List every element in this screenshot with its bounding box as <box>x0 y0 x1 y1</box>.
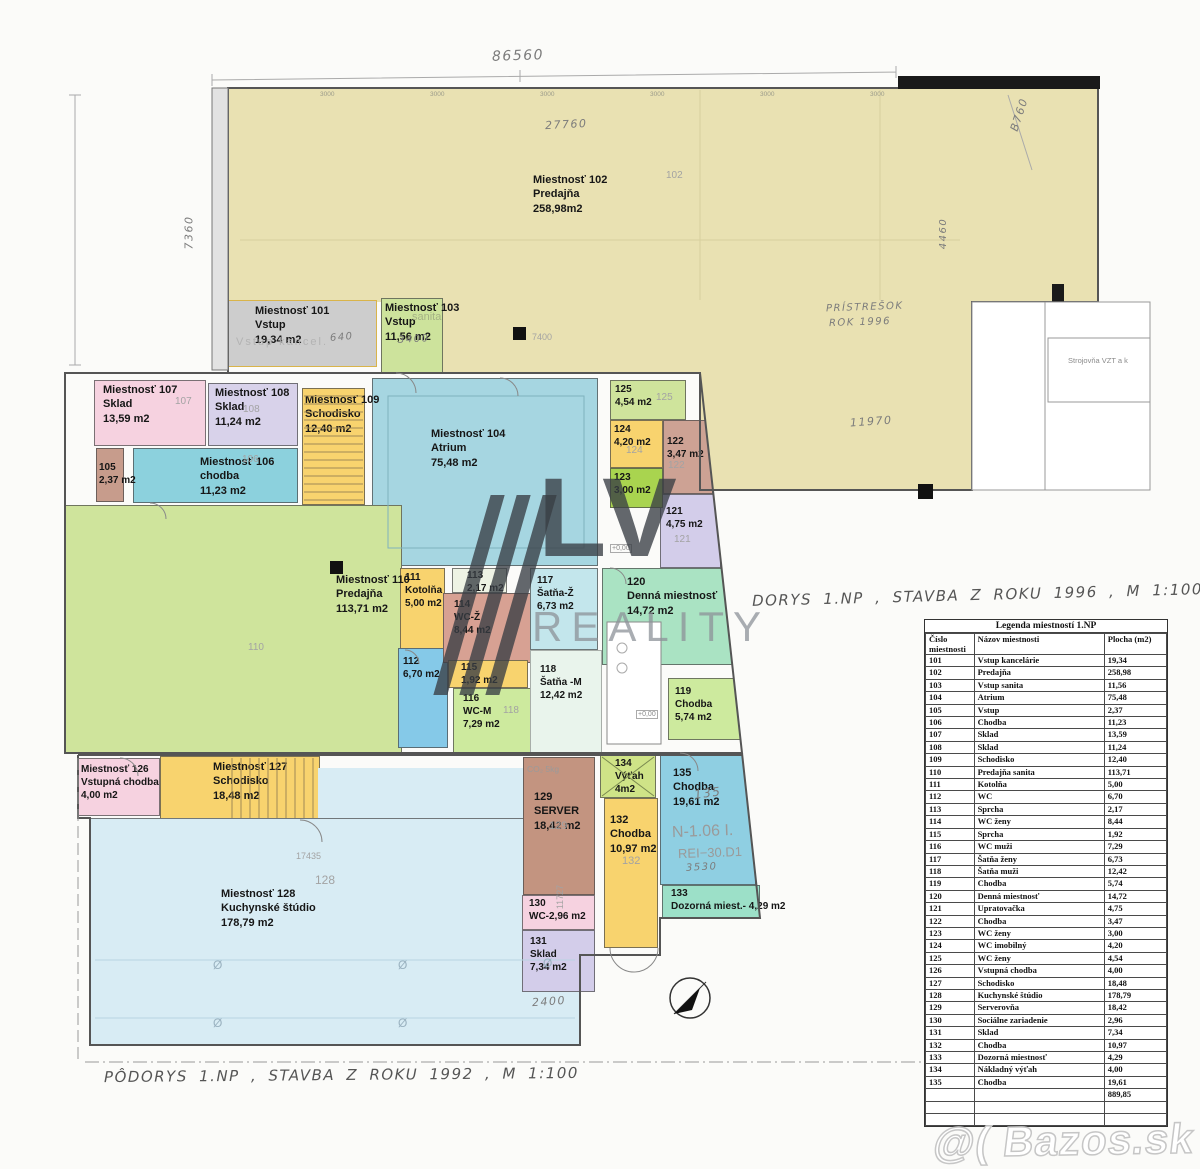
legend-cell: WC imobilný <box>974 940 1104 952</box>
legend-cell: 128 <box>926 989 975 1001</box>
room-120-area: 120Denná miestnosť14,72 m2 <box>602 568 744 665</box>
legend-row: 121Upratovačka4,75 <box>926 903 1167 915</box>
legend-row: 115Sprcha1,92 <box>926 828 1167 840</box>
room-label: Miestnosť 109Schodisko12,40 m2 <box>305 393 364 436</box>
room-102b-area <box>443 302 700 373</box>
legend-cell: Kuchynské štúdio <box>974 989 1104 1001</box>
legend-cell: 2,17 <box>1104 803 1166 815</box>
room-113-area: 1132,17 m2 <box>452 568 507 593</box>
room-label-line: Predajňa <box>533 187 1098 201</box>
room-label-line: WC-Ž <box>454 611 530 624</box>
legend-cell: 115 <box>926 828 975 840</box>
room-label-line: 14,72 m2 <box>627 604 743 618</box>
legend-cell: 119 <box>926 878 975 890</box>
room-label-line: Miestnosť 126 <box>81 763 159 776</box>
room-label-line: 258,98m2 <box>533 202 1098 216</box>
room-label-line: 19,61 m2 <box>673 795 755 809</box>
legend-cell: 4,29 <box>1104 1052 1166 1064</box>
room-label: Miestnosť 127Schodisko18,48 m2 <box>213 760 319 803</box>
room-label-line: Šatňa-Ž <box>537 587 597 600</box>
legend-cell: 6,73 <box>1104 853 1166 865</box>
legend-row: 102Predajňa258,98 <box>926 667 1167 679</box>
legend-cell <box>1104 1101 1166 1113</box>
legend-cell: 120 <box>926 890 975 902</box>
legend-row: 107Sklad13,59 <box>926 729 1167 741</box>
room-label: 135Chodba19,61 m2 <box>673 766 755 809</box>
legend-cell: 889,85 <box>1104 1089 1166 1101</box>
legend-cell: Chodba <box>974 1039 1104 1051</box>
room-125-area: 1254,54 m2 <box>610 380 686 420</box>
room-label-line: Kotolňa <box>405 584 444 597</box>
legend-row: 124WC imobilný4,20 <box>926 940 1167 952</box>
legend-cell <box>926 1114 975 1126</box>
room-103-area: Miestnosť 103Vstup11,56 m2 <box>381 298 443 373</box>
legend-cell <box>974 1101 1104 1113</box>
room-label-line: Miestnosť 107 <box>103 383 205 397</box>
room-label-line: Miestnosť 104 <box>431 427 597 441</box>
legend-cell: 134 <box>926 1064 975 1076</box>
room-label-line: 116 <box>463 692 530 705</box>
legend-cell: 107 <box>926 729 975 741</box>
legend-row: 109Schodisko12,40 <box>926 754 1167 766</box>
legend-row: 122Chodba3,47 <box>926 915 1167 927</box>
room-label-line: 123 <box>614 471 662 484</box>
room-102c-area <box>700 302 972 490</box>
legend-row <box>926 1114 1167 1126</box>
room-label-line: Sklad <box>215 400 297 414</box>
legend-cell: Sklad <box>974 741 1104 753</box>
room-128a-area <box>318 768 525 820</box>
legend-cell: WC <box>974 791 1104 803</box>
legend-cell: Chodba <box>974 915 1104 927</box>
room-132-area: 132Chodba10,97 m2 <box>604 798 658 948</box>
room-label-line: 6,73 m2 <box>537 600 597 613</box>
room-107-area: Miestnosť 107Sklad13,59 m2 <box>94 380 206 446</box>
legend-cell: 114 <box>926 816 975 828</box>
room-label: Miestnosť 104Atrium75,48 m2 <box>431 427 597 470</box>
legend-cell: Vstupná chodba <box>974 965 1104 977</box>
room-label-line: 3,47 m2 <box>667 448 712 461</box>
room-label-line: 122 <box>667 435 712 448</box>
room-label-line: Výťah <box>615 770 655 783</box>
legend-cell: 12,42 <box>1104 865 1166 877</box>
room-label: 111Kotolňa5,00 m2 <box>405 571 444 610</box>
room-label-line: 75,48 m2 <box>431 456 597 470</box>
legend-col-number: Číslo miestnosti <box>926 634 975 655</box>
room-label-line: 5,00 m2 <box>405 597 444 610</box>
room-104-area: Miestnosť 104Atrium75,48 m2 <box>372 378 598 566</box>
legend-cell: 14,72 <box>1104 890 1166 902</box>
legend-cell: 113 <box>926 803 975 815</box>
legend-row: 104Atrium75,48 <box>926 692 1167 704</box>
room-label: 1233,00 m2 <box>614 471 662 497</box>
room-label-line: 131 <box>530 935 594 948</box>
room-label-line: Vstup <box>385 315 442 329</box>
room-101-area: Miestnosť 101Vstup19,34 m2 <box>228 300 377 367</box>
legend-cell: 11,56 <box>1104 679 1166 691</box>
legend-cell: 118 <box>926 865 975 877</box>
legend-row: 108Sklad11,24 <box>926 741 1167 753</box>
legend-cell: 105 <box>926 704 975 716</box>
room-label-line: 118 <box>540 663 601 676</box>
room-label-line: Sklad <box>103 397 205 411</box>
legend-cell: 5,00 <box>1104 779 1166 791</box>
room-label-line: Dozorná miest.- 4,29 m2 <box>671 900 759 913</box>
legend-cell: 258,98 <box>1104 667 1166 679</box>
room-label-line: 2,37 m2 <box>99 474 123 487</box>
legend-cell: 4,00 <box>1104 965 1166 977</box>
legend-cell: 2,37 <box>1104 704 1166 716</box>
legend-cell: 113,71 <box>1104 766 1166 778</box>
legend-row: 135Chodba19,61 <box>926 1076 1167 1088</box>
room-label: 1052,37 m2 <box>99 461 123 487</box>
legend-cell: 126 <box>926 965 975 977</box>
room-label-line: 114 <box>454 598 530 611</box>
legend-cell: WC ženy <box>974 952 1104 964</box>
room-label-line: 12,40 m2 <box>305 422 364 436</box>
legend-cell: 13,59 <box>1104 729 1166 741</box>
legend-cell: 123 <box>926 927 975 939</box>
legend-row: 118Šatňa muži12,42 <box>926 865 1167 877</box>
legend-cell: 75,48 <box>1104 692 1166 704</box>
room-label-line: 11,56 m2 <box>385 330 442 344</box>
room-label: Miestnosť 102Predajňa258,98m2 <box>533 173 1098 216</box>
legend-col-name: Názov miestnosti <box>974 634 1104 655</box>
room-label-line: Miestnosť 110 <box>336 573 401 587</box>
room-label-line: 7,29 m2 <box>463 718 530 731</box>
room-label-line: 3,00 m2 <box>614 484 662 497</box>
room-label: 118Šatňa -M12,42 m2 <box>540 663 601 702</box>
legend-title: Legenda miestností 1.NP <box>925 620 1167 633</box>
room-label: Miestnosť 106chodba11,23 m2 <box>200 455 297 498</box>
legend-row: 133Dozorná miestnosť4,29 <box>926 1052 1167 1064</box>
room-label-line: 124 <box>614 423 662 436</box>
room-label: Miestnosť 128Kuchynské štúdio178,79 m2 <box>221 887 579 930</box>
legend-row: 120Denná miestnosť14,72 <box>926 890 1167 902</box>
legend-row: 113Sprcha2,17 <box>926 803 1167 815</box>
legend-row: 101Vstup kancelárie19,34 <box>926 655 1167 667</box>
room-label-line: Miestnosť 127 <box>213 760 319 774</box>
room-label-line: 115 <box>461 661 527 674</box>
room-119-area: 119Chodba5,74 m2 <box>668 678 742 740</box>
floor-plan: Miestnosť 102Predajňa258,98m2Miestnosť 1… <box>0 0 1200 1169</box>
room-label-line: 6,70 m2 <box>403 668 447 681</box>
room-label: 116WC-M7,29 m2 <box>463 692 530 731</box>
legend-cell: 133 <box>926 1052 975 1064</box>
legend-cell: 135 <box>926 1076 975 1088</box>
legend-cell: 178,79 <box>1104 989 1166 1001</box>
room-label-line: Vstupná chodba <box>81 776 159 789</box>
room-label-line: 8,44 m2 <box>454 624 530 637</box>
legend-row: 889,85 <box>926 1089 1167 1101</box>
room-label-line: Miestnosť 103 <box>385 301 442 315</box>
room-label-line: 4,54 m2 <box>615 396 685 409</box>
room-label-line: Miestnosť 102 <box>533 173 1098 187</box>
room-label-line: 4,20 m2 <box>614 436 662 449</box>
room-label-line: WC-2,96 m2 <box>529 910 594 923</box>
legend-row: 111Kotolňa5,00 <box>926 779 1167 791</box>
legend-cell: 122 <box>926 915 975 927</box>
legend-cell: WC ženy <box>974 816 1104 828</box>
legend-cell <box>926 1101 975 1113</box>
legend-cell: Vstup <box>974 704 1104 716</box>
legend-cell <box>974 1089 1104 1101</box>
room-label: 119Chodba5,74 m2 <box>675 685 741 724</box>
room-label-line: 18,42 m2 <box>534 819 594 833</box>
room-label-line: Chodba <box>673 780 755 794</box>
room-label-line: 4,75 m2 <box>666 518 720 531</box>
room-label-line: 112 <box>403 655 447 668</box>
room-label: 131Sklad7,34 m2 <box>530 935 594 974</box>
legend-cell: Chodba <box>974 1076 1104 1088</box>
legend-cell: 5,74 <box>1104 878 1166 890</box>
room-118-area: 118Šatňa -M12,42 m2 <box>530 650 602 753</box>
legend-cell: 4,75 <box>1104 903 1166 915</box>
room-label: 1223,47 m2 <box>667 435 712 461</box>
legend-row: 106Chodba11,23 <box>926 717 1167 729</box>
room-126-area: Miestnosť 126Vstupná chodba4,00 m2 <box>78 758 160 816</box>
legend-row: 110Predajňa sanita113,71 <box>926 766 1167 778</box>
room-label-line: 7,34 m2 <box>530 961 594 974</box>
legend-cell: Kotolňa <box>974 779 1104 791</box>
legend-cell: 19,61 <box>1104 1076 1166 1088</box>
legend-cell: 4,00 <box>1104 1064 1166 1076</box>
room-label-line: Miestnosť 108 <box>215 386 297 400</box>
legend-cell: Predajňa <box>974 667 1104 679</box>
room-label: 120Denná miestnosť14,72 m2 <box>627 575 743 618</box>
legend-cell: 1,92 <box>1104 828 1166 840</box>
room-label: Miestnosť 126Vstupná chodba4,00 m2 <box>81 763 159 802</box>
legend-cell: Sociálne zariadenie <box>974 1014 1104 1026</box>
room-label: Miestnosť 103Vstup11,56 m2 <box>385 301 442 344</box>
legend-cell: Chodba <box>974 717 1104 729</box>
legend-cell: 3,00 <box>1104 927 1166 939</box>
legend-cell <box>926 1089 975 1101</box>
legend-cell: 11,24 <box>1104 741 1166 753</box>
room-label: 1214,75 m2 <box>666 505 720 531</box>
room-label-line: Miestnosť 106 <box>200 455 297 469</box>
legend-row: 129Serverovňa18,42 <box>926 1002 1167 1014</box>
room-label-line: 133 <box>671 887 759 900</box>
room-label-line: 18,48 m2 <box>213 789 319 803</box>
room-label-line: 5,74 m2 <box>675 711 741 724</box>
legend-cell: 6,70 <box>1104 791 1166 803</box>
legend-cell: 116 <box>926 841 975 853</box>
legend-cell: 124 <box>926 940 975 952</box>
room-label: 129SERVER18,42 m2 <box>534 790 594 833</box>
legend-row: 125WC ženy4,54 <box>926 952 1167 964</box>
room-label: 134Výťah4m2 <box>615 757 655 796</box>
legend-cell: 10,97 <box>1104 1039 1166 1051</box>
room-label: 132Chodba10,97 m2 <box>610 813 657 856</box>
legend-cell: 110 <box>926 766 975 778</box>
room-label-line: 11,24 m2 <box>215 415 297 429</box>
room-label-line: 1,92 m2 <box>461 674 527 687</box>
room-label: Miestnosť 101Vstup19,34 m2 <box>255 304 376 347</box>
room-122-area: 1223,47 m2 <box>663 420 713 494</box>
room-label-line: 135 <box>673 766 755 780</box>
room-label-line: Predajňa <box>336 587 401 601</box>
legend-cell: WC ženy <box>974 927 1104 939</box>
legend-cell: 3,47 <box>1104 915 1166 927</box>
legend-cell: 104 <box>926 692 975 704</box>
room-label: 1132,17 m2 <box>467 569 506 595</box>
legend-cell: 112 <box>926 791 975 803</box>
room-117-area: 117Šatňa-Ž6,73 m2 <box>530 568 598 650</box>
room-label: 130WC-2,96 m2 <box>529 897 594 923</box>
legend-row: 105Vstup2,37 <box>926 704 1167 716</box>
room-135-area: 135Chodba19,61 m2 <box>660 753 756 885</box>
legend-cell: 121 <box>926 903 975 915</box>
legend-cell <box>974 1114 1104 1126</box>
room-label-line: 130 <box>529 897 594 910</box>
room-123-area: 1233,00 m2 <box>610 468 663 508</box>
room-124-area: 1244,20 m2 <box>610 420 663 468</box>
legend-cell: Šatňa muži <box>974 865 1104 877</box>
room-128-area: Miestnosť 128Kuchynské štúdio178,79 m2 <box>90 818 580 1045</box>
room-label-line: Schodisko <box>213 774 319 788</box>
legend-cell: 19,34 <box>1104 655 1166 667</box>
room-label-line: 132 <box>610 813 657 827</box>
room-label-line: 129 <box>534 790 594 804</box>
legend-cell: Sklad <box>974 1027 1104 1039</box>
legend-cell: Vstup kancelárie <box>974 655 1104 667</box>
legend-cell: Predajňa sanita <box>974 766 1104 778</box>
room-131-area: 131Sklad7,34 m2 <box>522 930 595 992</box>
room-label-line: 125 <box>615 383 685 396</box>
legend-cell: 11,23 <box>1104 717 1166 729</box>
legend-cell: 7,34 <box>1104 1027 1166 1039</box>
legend-cell: Vstup sanita <box>974 679 1104 691</box>
room-label-line: 178,79 m2 <box>221 916 579 930</box>
legend-cell: 18,42 <box>1104 1002 1166 1014</box>
room-label-line: 134 <box>615 757 655 770</box>
legend-row: 123WC ženy3,00 <box>926 927 1167 939</box>
legend-row: 128Kuchynské štúdio178,79 <box>926 989 1167 1001</box>
legend-cell: Upratovačka <box>974 903 1104 915</box>
room-label-line: 4,00 m2 <box>81 789 159 802</box>
legend-row: 134Nákladný výťah4,00 <box>926 1064 1167 1076</box>
legend-cell: Nákladný výťah <box>974 1064 1104 1076</box>
room-134-area: 134Výťah4m2 <box>600 755 656 798</box>
legend-row: 126Vstupná chodba4,00 <box>926 965 1167 977</box>
room-105-area: 1052,37 m2 <box>96 448 124 502</box>
legend-col-area: Plocha (m2) <box>1104 634 1166 655</box>
legend-cell: 111 <box>926 779 975 791</box>
legend-row: 127Schodisko18,48 <box>926 977 1167 989</box>
room-label-line: Miestnosť 101 <box>255 304 376 318</box>
room-129-area: 129SERVER18,42 m2 <box>523 757 595 895</box>
legend-cell: Serverovňa <box>974 1002 1104 1014</box>
legend-row: 103Vstup sanita11,56 <box>926 679 1167 691</box>
room-label-line: 10,97 m2 <box>610 842 657 856</box>
legend-table: Legenda miestností 1.NP Číslo miestnosti… <box>924 619 1168 1127</box>
legend-cell: Atrium <box>974 692 1104 704</box>
legend-cell: 125 <box>926 952 975 964</box>
room-label: 1126,70 m2 <box>403 655 447 681</box>
room-115-area: 1151,92 m2 <box>448 660 528 688</box>
room-109-area: Miestnosť 109Schodisko12,40 m2 <box>302 388 365 505</box>
room-108-area: Miestnosť 108Sklad11,24 m2 <box>208 383 298 446</box>
legend-cell: 102 <box>926 667 975 679</box>
legend-row: 114WC ženy8,44 <box>926 816 1167 828</box>
legend-cell: Chodba <box>974 878 1104 890</box>
room-label-line: chodba <box>200 469 297 483</box>
room-label-line: Chodba <box>675 698 741 711</box>
legend-cell: Denná miestnosť <box>974 890 1104 902</box>
room-label-line: Miestnosť 109 <box>305 393 364 407</box>
room-label: 1151,92 m2 <box>461 661 527 687</box>
room-label-line: Vstup <box>255 318 376 332</box>
legend-cell: Sklad <box>974 729 1104 741</box>
room-label-line: 111 <box>405 571 444 584</box>
room-label-line: Sklad <box>530 948 594 961</box>
legend-cell: 127 <box>926 977 975 989</box>
legend-row: 119Chodba5,74 <box>926 878 1167 890</box>
room-121-area: 1214,75 m2 <box>660 494 721 568</box>
room-label-line: 117 <box>537 574 597 587</box>
room-label: 117Šatňa-Ž6,73 m2 <box>537 574 597 613</box>
room-label: 133Dozorná miest.- 4,29 m2 <box>671 887 759 913</box>
room-106-area: Miestnosť 106chodba11,23 m2 <box>133 448 298 503</box>
legend-cell <box>1104 1114 1166 1126</box>
legend-cell: Dozorná miestnosť <box>974 1052 1104 1064</box>
room-label-line: Miestnosť 128 <box>221 887 579 901</box>
room-label-line: 12,42 m2 <box>540 689 601 702</box>
legend-cell: 129 <box>926 1002 975 1014</box>
room-127-area: Miestnosť 127Schodisko18,48 m2 <box>160 756 320 820</box>
room-label: 1254,54 m2 <box>615 383 685 409</box>
room-label-line: 13,59 m2 <box>103 412 205 426</box>
legend-row: 130Sociálne zariadenie2,96 <box>926 1014 1167 1026</box>
legend-row: 116WC muži7,29 <box>926 841 1167 853</box>
legend-cell: 7,29 <box>1104 841 1166 853</box>
legend-cell: Šatňa ženy <box>974 853 1104 865</box>
legend-cell: 101 <box>926 655 975 667</box>
room-label-line: 4m2 <box>615 783 655 796</box>
room-label: Miestnosť 108Sklad11,24 m2 <box>215 386 297 429</box>
room-label-line: 120 <box>627 575 743 589</box>
room-label-line: Chodba <box>610 827 657 841</box>
room-label: Miestnosť 107Sklad13,59 m2 <box>103 383 205 426</box>
legend-cell: 117 <box>926 853 975 865</box>
legend-cell: 8,44 <box>1104 816 1166 828</box>
legend-row <box>926 1101 1167 1113</box>
room-label: Miestnosť 110Predajňa113,71 m2 <box>336 573 401 616</box>
room-label-line: WC-M <box>463 705 530 718</box>
legend-cell: 4,20 <box>1104 940 1166 952</box>
room-label-line: 113,71 m2 <box>336 602 401 616</box>
legend-row: 117Šatňa ženy6,73 <box>926 853 1167 865</box>
room-label-line: 2,17 m2 <box>467 582 506 595</box>
room-133-area: 133Dozorná miest.- 4,29 m2 <box>662 885 760 918</box>
room-114-area: 114WC-Ž8,44 m2 <box>443 593 531 663</box>
legend-cell: 131 <box>926 1027 975 1039</box>
room-label-line: 121 <box>666 505 720 518</box>
legend-cell: 103 <box>926 679 975 691</box>
legend-cell: 109 <box>926 754 975 766</box>
room-label-line: 119 <box>675 685 741 698</box>
legend-cell: Schodisko <box>974 977 1104 989</box>
legend-cell: 130 <box>926 1014 975 1026</box>
legend-cell: 108 <box>926 741 975 753</box>
room-label: 114WC-Ž8,44 m2 <box>454 598 530 637</box>
room-label-line: 19,34 m2 <box>255 333 376 347</box>
legend-cell: 18,48 <box>1104 977 1166 989</box>
legend-cell: 2,96 <box>1104 1014 1166 1026</box>
room-label-line: Atrium <box>431 441 597 455</box>
room-label-line: 11,23 m2 <box>200 484 297 498</box>
